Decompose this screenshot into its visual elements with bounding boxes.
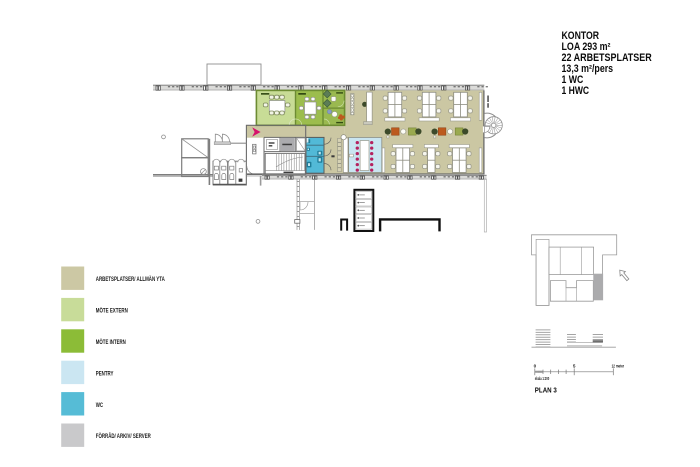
svg-text:ARBETSPLATSER/ ALLMÄN YTA: ARBETSPLATSER/ ALLMÄN YTA bbox=[96, 276, 165, 283]
svg-text:12 meter: 12 meter bbox=[612, 363, 625, 368]
svg-text:skala 1:200: skala 1:200 bbox=[535, 376, 550, 381]
svg-text:1 HWC: 1 HWC bbox=[562, 85, 590, 97]
svg-text:MÖTE INTERN: MÖTE INTERN bbox=[96, 339, 126, 346]
svg-text:MÖTE EXTERN: MÖTE EXTERN bbox=[96, 308, 128, 315]
svg-text:PLAN 3: PLAN 3 bbox=[535, 385, 557, 394]
svg-text:PENTRY: PENTRY bbox=[96, 371, 114, 377]
svg-text:5: 5 bbox=[573, 363, 576, 368]
svg-text:WC: WC bbox=[96, 403, 104, 409]
svg-text:0: 0 bbox=[534, 363, 537, 368]
svg-text:FÖRRÅD/ ARKIV/ SERVER: FÖRRÅD/ ARKIV/ SERVER bbox=[96, 433, 151, 440]
